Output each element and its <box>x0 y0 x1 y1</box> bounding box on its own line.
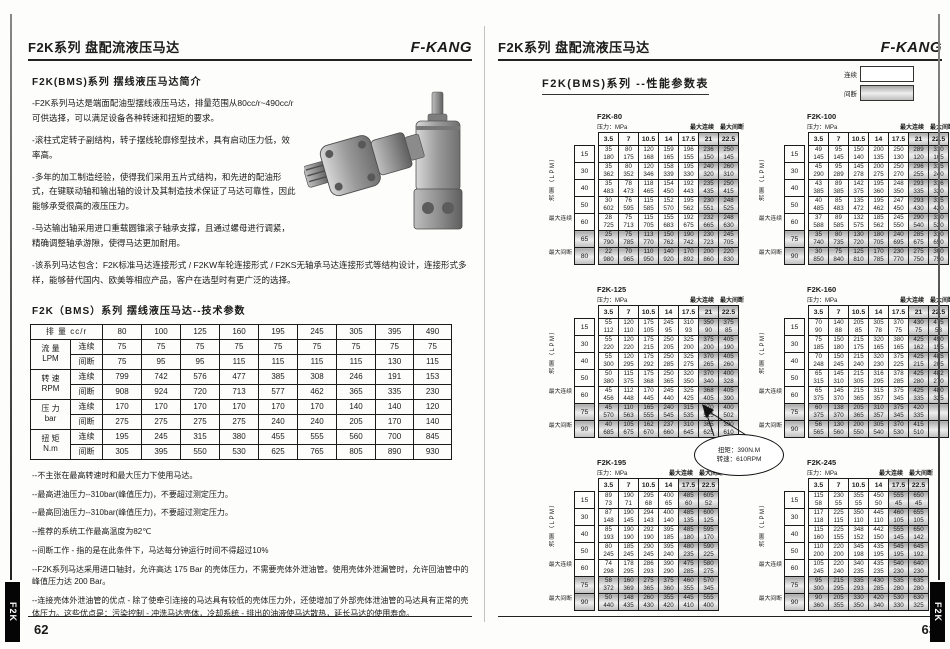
perf-cell: 305540 <box>869 421 889 438</box>
speed-value: 165 <box>889 344 908 352</box>
perf-cell: 75185 <box>809 336 829 353</box>
perf-cell: 110950 <box>639 248 659 265</box>
perf-cell: 65315 <box>809 370 829 387</box>
torque-value: 220 <box>829 560 848 568</box>
perf-cell: 293430 <box>909 197 929 214</box>
speed-value: 675 <box>619 429 638 437</box>
pressure-value: 17.5 <box>679 133 699 146</box>
torque-value: 400 <box>659 492 678 500</box>
perf-cell: 325200 <box>679 336 699 353</box>
tech-row: 间断275275275275240240205170140 <box>31 414 452 429</box>
torque-value: 460 <box>679 577 698 585</box>
mode-label: 间断 <box>71 444 103 459</box>
torque-value: 405 <box>719 353 738 361</box>
perf-cell: 460105 <box>889 509 909 526</box>
speed-value: 105 <box>909 517 928 525</box>
speed-value: 570 <box>659 205 678 213</box>
perf-cell: 375225 <box>889 353 909 370</box>
speed-value: 240 <box>659 551 678 559</box>
perf-cell: 175368 <box>639 370 659 387</box>
perf-cell: 400140 <box>659 509 679 526</box>
speed-value: 220 <box>599 344 618 352</box>
torque-value: 405 <box>719 387 738 395</box>
perf-cell: 250145 <box>719 146 739 163</box>
torque-value: 375 <box>889 387 908 395</box>
torque-value: 316 <box>869 370 888 378</box>
callout-torque: 扭矩：390N.M <box>718 446 760 455</box>
flow-column: 15304050607590 <box>574 491 595 611</box>
torque-value: 89 <box>829 214 848 222</box>
speed-value: 215 <box>909 361 928 369</box>
perf-table-F2K-195: F2K-195压力：MPa最大连续最大间断153040506075903.571… <box>538 458 748 631</box>
speed-value: 375 <box>849 188 868 196</box>
flow-row: 15 <box>785 319 805 336</box>
max-intermittent-label: 最大间断 <box>909 468 933 477</box>
speed-value: 785 <box>619 239 638 247</box>
tech-cell: 170 <box>142 399 181 414</box>
perf-cell: 80735 <box>829 231 849 248</box>
speed-value: 190 <box>719 344 738 352</box>
perf-cell: 405190 <box>719 336 739 353</box>
perf-cell: 655105 <box>909 509 929 526</box>
perf-cell: 445410 <box>679 594 699 611</box>
perf-row: 115160225155348152442150555145650142 <box>809 526 929 543</box>
perf-cell: 11558 <box>809 492 829 509</box>
torque-value: 43 <box>809 180 828 188</box>
torque-value: 112 <box>619 387 638 395</box>
perf-cell: 50440 <box>599 594 619 611</box>
torque-value: 120 <box>619 336 638 344</box>
flow-value: 40 <box>575 353 595 370</box>
torque-value: 45 <box>599 404 618 412</box>
perf-cell: 150762 <box>659 231 679 248</box>
torque-value: 175 <box>639 353 658 361</box>
flow-value: 75 <box>575 577 595 594</box>
flow-row: 15 <box>575 146 595 163</box>
perf-cell: 225115 <box>829 509 849 526</box>
perf-cell: 175292 <box>639 353 659 370</box>
torque-value: 30 <box>809 248 828 256</box>
speed-value: 440 <box>599 602 618 610</box>
torque-value: 240 <box>889 231 908 239</box>
perf-cell: 165555 <box>639 404 659 421</box>
perf-cell: 250415 <box>719 180 739 197</box>
flow-row: 90 <box>575 421 595 438</box>
torque-value: 117 <box>809 509 828 517</box>
flow-row: 30 <box>575 336 595 353</box>
perf-cell: 375360 <box>659 577 679 594</box>
speed-value: 315 <box>809 378 828 386</box>
torque-value: 195 <box>869 197 888 205</box>
speed-value: 320 <box>699 171 718 179</box>
perf-cell: 530330 <box>889 594 909 611</box>
perf-row: 7024815024521524032023037522542521548520… <box>809 353 949 370</box>
perf-cell: 19071 <box>619 492 639 509</box>
tech-cell: 115 <box>220 354 259 369</box>
torque-value: 78 <box>619 180 638 188</box>
flow-row: 30 <box>785 509 805 526</box>
perf-cell: 40685 <box>599 421 619 438</box>
tech-cell: 75 <box>376 339 414 354</box>
flow-value: 15 <box>575 146 595 163</box>
flow-value: 30 <box>785 509 805 526</box>
torque-value: 130 <box>849 231 868 239</box>
perf-cell: 58372 <box>599 577 619 594</box>
flow-value: 90 <box>785 248 805 265</box>
perf-cell: 118465 <box>639 180 659 197</box>
footer-rule <box>498 616 942 617</box>
perf-cell: 196155 <box>679 146 699 163</box>
perf-cell: 43075 <box>909 319 929 336</box>
flow-row: 60 <box>785 214 805 231</box>
torque-value: 65 <box>809 370 828 378</box>
perf-cell: 185245 <box>619 543 639 560</box>
perf-cell: 250130 <box>889 146 909 163</box>
tech-cell: 576 <box>181 369 220 384</box>
mode-label: 间断 <box>71 384 103 399</box>
center-divider <box>484 26 485 622</box>
speed-value: 350 <box>849 602 868 610</box>
speed-value: 240 <box>829 568 848 576</box>
flow-value: 50 <box>575 543 595 560</box>
perf-cell: 315357 <box>869 387 889 404</box>
speed-value: 375 <box>619 378 638 386</box>
perf-row: 50440148435260430355420445410555400 <box>599 594 719 611</box>
side-max-continuous-label: 最大连续 <box>530 386 572 395</box>
speed-value: 195 <box>869 551 888 559</box>
torque-value: 475 <box>679 560 698 568</box>
pressure-value: 17.5 <box>679 306 699 319</box>
torque-value: 445 <box>869 509 888 517</box>
tech-cell: 115 <box>414 354 452 369</box>
side-max-continuous-label: 最大连续 <box>530 559 572 568</box>
speed-value: 293 <box>849 585 868 593</box>
torque-value: 375 <box>719 319 738 327</box>
binding-edge-left <box>10 14 12 580</box>
speed-value: 483 <box>829 205 848 213</box>
torque-value: 368 <box>699 387 718 395</box>
perf-cell: 378285 <box>889 370 909 387</box>
pressure-grid: 3.5710.51417.522.51155823055355554505055… <box>808 478 929 611</box>
perf-cell: 368405 <box>699 387 719 404</box>
tech-cell: 395 <box>142 444 181 459</box>
torque-value: 40 <box>599 421 618 429</box>
perf-cell: 37588 <box>809 214 829 231</box>
pressure-value: 10.5 <box>849 306 869 319</box>
pressure-value: 10.5 <box>849 479 869 492</box>
torque-value: 248 <box>889 180 908 188</box>
torque-value: 145 <box>849 163 868 171</box>
perf-cell: 76595 <box>619 197 639 214</box>
perf-row: 3574080735130720180705240695285675310650 <box>809 231 949 248</box>
perf-cell: 65045 <box>909 492 929 509</box>
pressure-value: 3.5 <box>599 133 619 146</box>
perf-cell: 370530 <box>889 421 909 438</box>
perf-cell: 250365 <box>659 370 679 387</box>
perf-cell: 320350 <box>679 370 699 387</box>
speed-value: 245 <box>619 551 638 559</box>
pressure-value: 10.5 <box>849 133 869 146</box>
torque-value: 74 <box>599 560 618 568</box>
perf-cell: 230723 <box>699 231 719 248</box>
speed-value: 665 <box>699 222 718 230</box>
speed-value: 705 <box>639 222 658 230</box>
perf-row: 5038011537517536825036532035037034040032… <box>599 370 739 387</box>
motor-photo-illustration <box>304 90 472 240</box>
tech-group-unit: bar <box>31 414 70 424</box>
torque-value: 237 <box>659 421 678 429</box>
mode-label: 连续 <box>71 339 103 354</box>
flow-row: 40 <box>575 353 595 370</box>
perf-cell: 195562 <box>679 197 699 214</box>
torque-value: 215 <box>849 353 868 361</box>
speed-value: 235 <box>679 551 698 559</box>
flow-value: 60 <box>575 387 595 404</box>
speed-value: 400 <box>699 602 718 610</box>
speed-value: 473 <box>619 188 638 196</box>
perf-cell: 95145 <box>829 146 849 163</box>
speed-value: 175 <box>619 154 638 162</box>
perf-row: 3060276595115585152570195562230551248525 <box>599 197 739 214</box>
tech-cell: 245 <box>142 429 181 444</box>
perf-cell: 192443 <box>679 180 699 197</box>
torque-value: 118 <box>639 180 658 188</box>
perf-row: 5530012029517529225028532527537026540526… <box>599 353 739 370</box>
perf-cell: 230770 <box>889 248 909 265</box>
perf-cell: 475285 <box>679 560 699 577</box>
torque-value: 310 <box>869 404 888 412</box>
torque-value: 70 <box>809 319 828 327</box>
displacement-value: 195 <box>259 324 298 339</box>
perf-cell: 30578 <box>869 319 889 336</box>
speed-value: 88 <box>829 327 848 335</box>
flow-value: 75 <box>785 577 805 594</box>
speed-value: 562 <box>869 222 888 230</box>
speed-value: 360 <box>809 602 828 610</box>
flow-axis-label: 流量（LPM） <box>758 154 767 201</box>
perf-cell: 138370 <box>829 404 849 421</box>
legend-intermittent: 间断 <box>844 85 914 101</box>
torque-value: 158 <box>659 163 678 171</box>
torque-value: 395 <box>659 526 678 534</box>
flow-row: 60 <box>575 387 595 404</box>
flow-value: 15 <box>575 319 595 336</box>
pressure-grid: 3.5710.51417.52122.570901408820585305783… <box>808 305 949 438</box>
pressure-value: 7 <box>829 133 849 146</box>
tech-cell: 560 <box>337 429 376 444</box>
speed-value: 588 <box>809 222 828 230</box>
speed-value: 850 <box>809 256 828 264</box>
flow-value: 90 <box>575 594 595 611</box>
flow-row: 40 <box>575 180 595 197</box>
pressure-value: 21 <box>909 133 929 146</box>
tech-cell: 385 <box>259 369 298 384</box>
speed-value: 560 <box>829 429 848 437</box>
max-continuous-label: 最大连续 <box>690 122 714 131</box>
speed-value: 770 <box>639 239 658 247</box>
torque-value: 170 <box>679 248 698 256</box>
torque-value: 230 <box>699 197 718 205</box>
speed-value: 300 <box>599 361 618 369</box>
torque-value: 215 <box>849 387 868 395</box>
flow-row: 90 <box>785 594 805 611</box>
speed-value: 73 <box>599 500 618 508</box>
tech-group-name: 转 速RPM <box>31 369 71 399</box>
perf-cell: 37075 <box>889 319 909 336</box>
perf-cell: 237660 <box>659 421 679 438</box>
perf-cell: 117118 <box>809 509 829 526</box>
torque-value: 310 <box>679 319 698 327</box>
perf-cell: 275750 <box>909 248 929 265</box>
speed-value: 740 <box>809 239 828 247</box>
speed-value: 289 <box>829 171 848 179</box>
torque-value: 420 <box>869 594 888 602</box>
speed-value: 790 <box>599 239 618 247</box>
perf-cell: 195462 <box>869 197 889 214</box>
torque-value: 95 <box>829 146 848 154</box>
torque-value: 45 <box>599 387 618 395</box>
tech-cell: 230 <box>414 384 452 399</box>
speed-value: 435 <box>699 188 718 196</box>
speed-value: 245 <box>809 568 828 576</box>
flow-value: 60 <box>785 214 805 231</box>
speed-value: 105 <box>639 327 658 335</box>
flow-axis-label: 流量（LPM） <box>548 327 557 374</box>
perf-cell: 110200 <box>809 543 829 560</box>
speed-value: 720 <box>849 239 868 247</box>
pressure-grid: 3.5710.51417.52122.535180801751201681591… <box>598 132 739 265</box>
perf-cell: 248350 <box>889 180 909 197</box>
torque-value: 248 <box>719 214 738 222</box>
flow-value: 75 <box>785 231 805 248</box>
torque-value: 260 <box>639 594 658 602</box>
speed-value: 143 <box>639 517 658 525</box>
torque-value: 35 <box>599 163 618 171</box>
note-line: --推荐的系统工作最高温度为82℃ <box>32 526 472 538</box>
perf-cell: 640230 <box>909 560 929 577</box>
torque-value: 75 <box>619 214 638 222</box>
speed-value: 245 <box>639 551 658 559</box>
tech-cell: 153 <box>414 369 452 384</box>
pressure-grid: 3.5710.51417.522.58973190712956840065485… <box>598 478 719 611</box>
speed-value: 200 <box>829 551 848 559</box>
perf-cell: 85483 <box>829 197 849 214</box>
perf-cell: 35740 <box>809 231 829 248</box>
speed-value: 280 <box>909 378 928 386</box>
perf-cell: 260310 <box>719 163 739 180</box>
torque-value: 185 <box>869 214 888 222</box>
speed-value: 125 <box>699 517 718 525</box>
perf-cell: 80175 <box>619 146 639 163</box>
torque-value: 165 <box>639 404 658 412</box>
torque-value: 140 <box>829 319 848 327</box>
flow-value: 50 <box>785 370 805 387</box>
speed-value: 430 <box>909 205 928 213</box>
perf-row: 6537514537021536531535737534542533548032… <box>809 387 949 404</box>
perf-row: 115582305535555450505554565045 <box>809 492 929 509</box>
perf-cell: 245550 <box>889 214 909 231</box>
torque-value: 485 <box>679 509 698 517</box>
perf-cell: 635280 <box>909 577 929 594</box>
speed-value: 235 <box>869 568 888 576</box>
flow-row: 50 <box>575 543 595 560</box>
mode-label: 间断 <box>71 354 103 369</box>
perf-cell: 8973 <box>599 492 619 509</box>
perf-cell: 375345 <box>889 387 909 404</box>
speed-value: 185 <box>659 534 678 542</box>
torque-value: 192 <box>679 214 698 222</box>
tech-cell: 555 <box>298 429 337 444</box>
tech-cell: 742 <box>142 369 181 384</box>
torque-value: 180 <box>869 231 888 239</box>
torque-value: 28 <box>599 214 618 222</box>
perf-cell: 115705 <box>639 214 659 231</box>
perf-cell: 178295 <box>619 560 639 577</box>
perf-cell: 345198 <box>849 543 869 560</box>
torque-value: 220 <box>829 543 848 551</box>
torque-value: 200 <box>869 146 888 154</box>
torque-value: 185 <box>619 543 638 551</box>
perf-row: 7518515018021517532016538016542516249015… <box>809 336 949 353</box>
torque-value: 335 <box>849 577 868 585</box>
perf-cell: 89385 <box>829 180 849 197</box>
speed-value: 585 <box>639 205 658 213</box>
speed-value: 145 <box>809 154 828 162</box>
pressure-value: 7 <box>619 479 639 492</box>
speed-value: 165 <box>659 154 678 162</box>
torque-value: 605 <box>699 492 718 500</box>
perf-cell: 152570 <box>659 197 679 214</box>
torque-value: 293 <box>909 180 928 188</box>
torque-value: 390 <box>659 560 678 568</box>
tech-cell: 246 <box>337 369 376 384</box>
tech-group-unit: RPM <box>31 384 70 394</box>
perf-cell: 170445 <box>639 387 659 404</box>
speed-value: 145 <box>619 517 638 525</box>
perf-cell: 285675 <box>909 231 929 248</box>
speed-value: 162 <box>909 344 928 352</box>
torque-value: 320 <box>679 370 698 378</box>
torque-value: 87 <box>599 509 618 517</box>
perf-row: 3548378473118465154450192443235435250415 <box>599 180 739 197</box>
speed-value: 65 <box>659 500 678 508</box>
torque-value: 555 <box>699 594 718 602</box>
perf-cell: 430285 <box>869 577 889 594</box>
speed-value: 510 <box>909 429 928 437</box>
flow-row: 60 <box>785 387 805 404</box>
flow-value: 15 <box>785 319 805 336</box>
perf-cell: 22980 <box>599 248 619 265</box>
torque-value: 200 <box>869 163 888 171</box>
speed-value: 355 <box>679 585 698 593</box>
pressure-value: 14 <box>869 306 889 319</box>
displacement-value: 395 <box>376 324 414 339</box>
displacement-value: 125 <box>181 324 220 339</box>
perf-row: 2579075785113770150762190742230723245705 <box>599 231 739 248</box>
pressure-value: 14 <box>869 133 889 146</box>
perf-table-F2K-100: F2K-100压力：MPa最大连续最大间断153040506075903.571… <box>748 112 950 285</box>
speed-value: 120 <box>909 154 928 162</box>
pressure-unit-label: 压力：MPa <box>807 468 837 477</box>
speed-value: 260 <box>719 361 738 369</box>
note-line: --F2K系列马达采用进口轴封，允许高达 175 Bar 的壳体压力，不需要壳体… <box>32 564 472 589</box>
speed-value: 762 <box>659 239 678 247</box>
speed-value: 725 <box>599 222 618 230</box>
speed-value: 280 <box>889 585 908 593</box>
speed-value: 330 <box>679 171 698 179</box>
perf-row: 3536280352120346158339195330240320260310 <box>599 163 739 180</box>
flow-value: 40 <box>785 526 805 543</box>
